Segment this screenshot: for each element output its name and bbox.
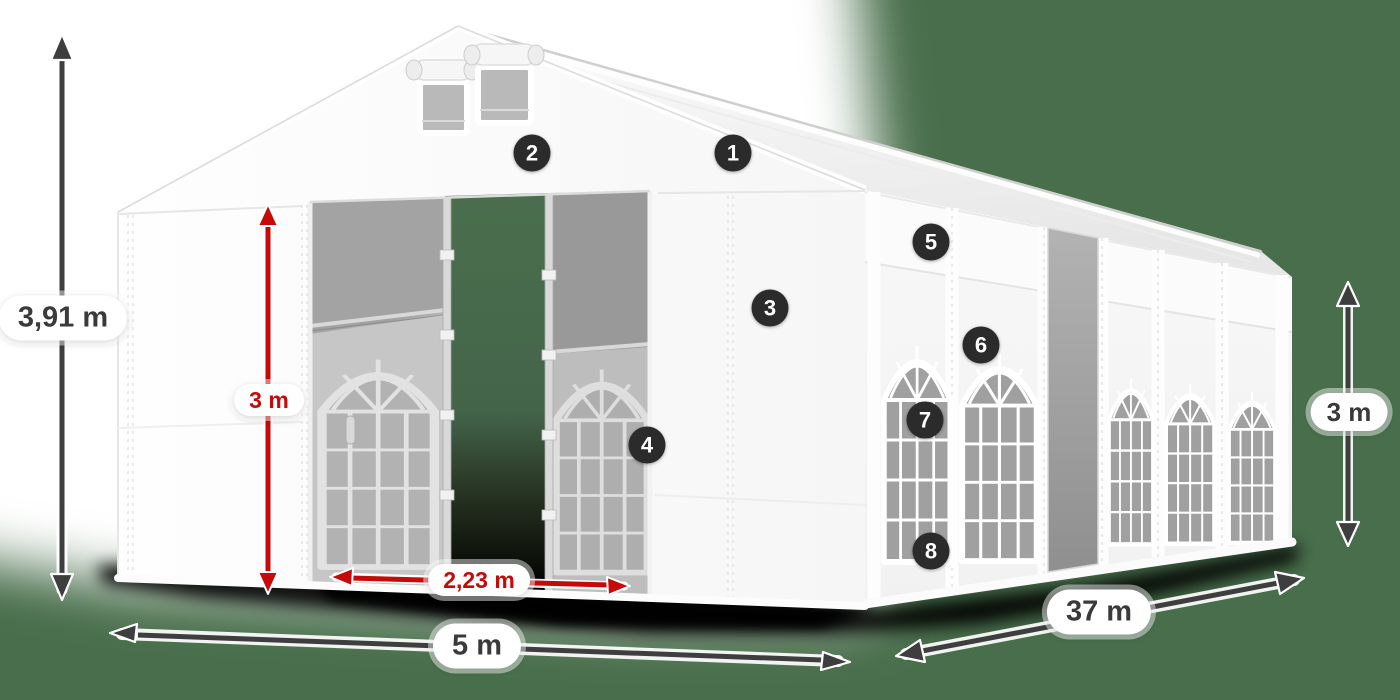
dim-door-width: 2,23 m [428,564,530,596]
callout-3[interactable]: 3 [752,290,789,327]
callout-number: 2 [526,140,538,166]
arched-window [1166,384,1214,544]
front-door-opening [310,191,650,598]
open-door-gap [445,193,549,592]
arched-window [1109,378,1153,544]
callout-number: 8 [925,538,937,564]
callout-1[interactable]: 1 [715,135,752,172]
arched-window [962,354,1037,561]
inner-door-window [556,370,647,573]
dim-side-length: 37 m [1047,590,1151,635]
door-handle [346,416,355,444]
side-door-opening [1048,228,1098,572]
callout-number: 1 [727,140,739,166]
tent-diagram: 3,91 m 3 m 2,23 m 5 m 37 m 3 m 1 2 3 4 5… [0,0,1400,700]
arched-window [884,346,950,562]
vent-window [420,82,467,133]
callout-4[interactable]: 4 [629,427,666,464]
callout-number: 3 [764,295,776,321]
tent-illustration [0,0,1400,700]
arched-window [1229,392,1275,543]
dim-wall-height: 3 m [1311,393,1388,431]
callout-number: 6 [975,332,987,358]
callout-number: 7 [919,407,931,433]
vent-window [478,67,531,123]
dim-door-height: 3 m [234,384,304,416]
callout-number: 5 [925,229,937,255]
callout-2[interactable]: 2 [514,135,551,172]
dim-total-height: 3,91 m [0,296,127,341]
callout-8[interactable]: 8 [913,533,950,570]
callout-7[interactable]: 7 [907,402,944,439]
dim-front-width: 5 m [433,624,521,669]
inner-door-window [322,360,434,567]
vent-roll [472,44,536,65]
vent-roll [414,60,472,80]
callout-number: 4 [641,432,653,458]
callout-5[interactable]: 5 [913,224,950,261]
callout-6[interactable]: 6 [963,327,1000,364]
